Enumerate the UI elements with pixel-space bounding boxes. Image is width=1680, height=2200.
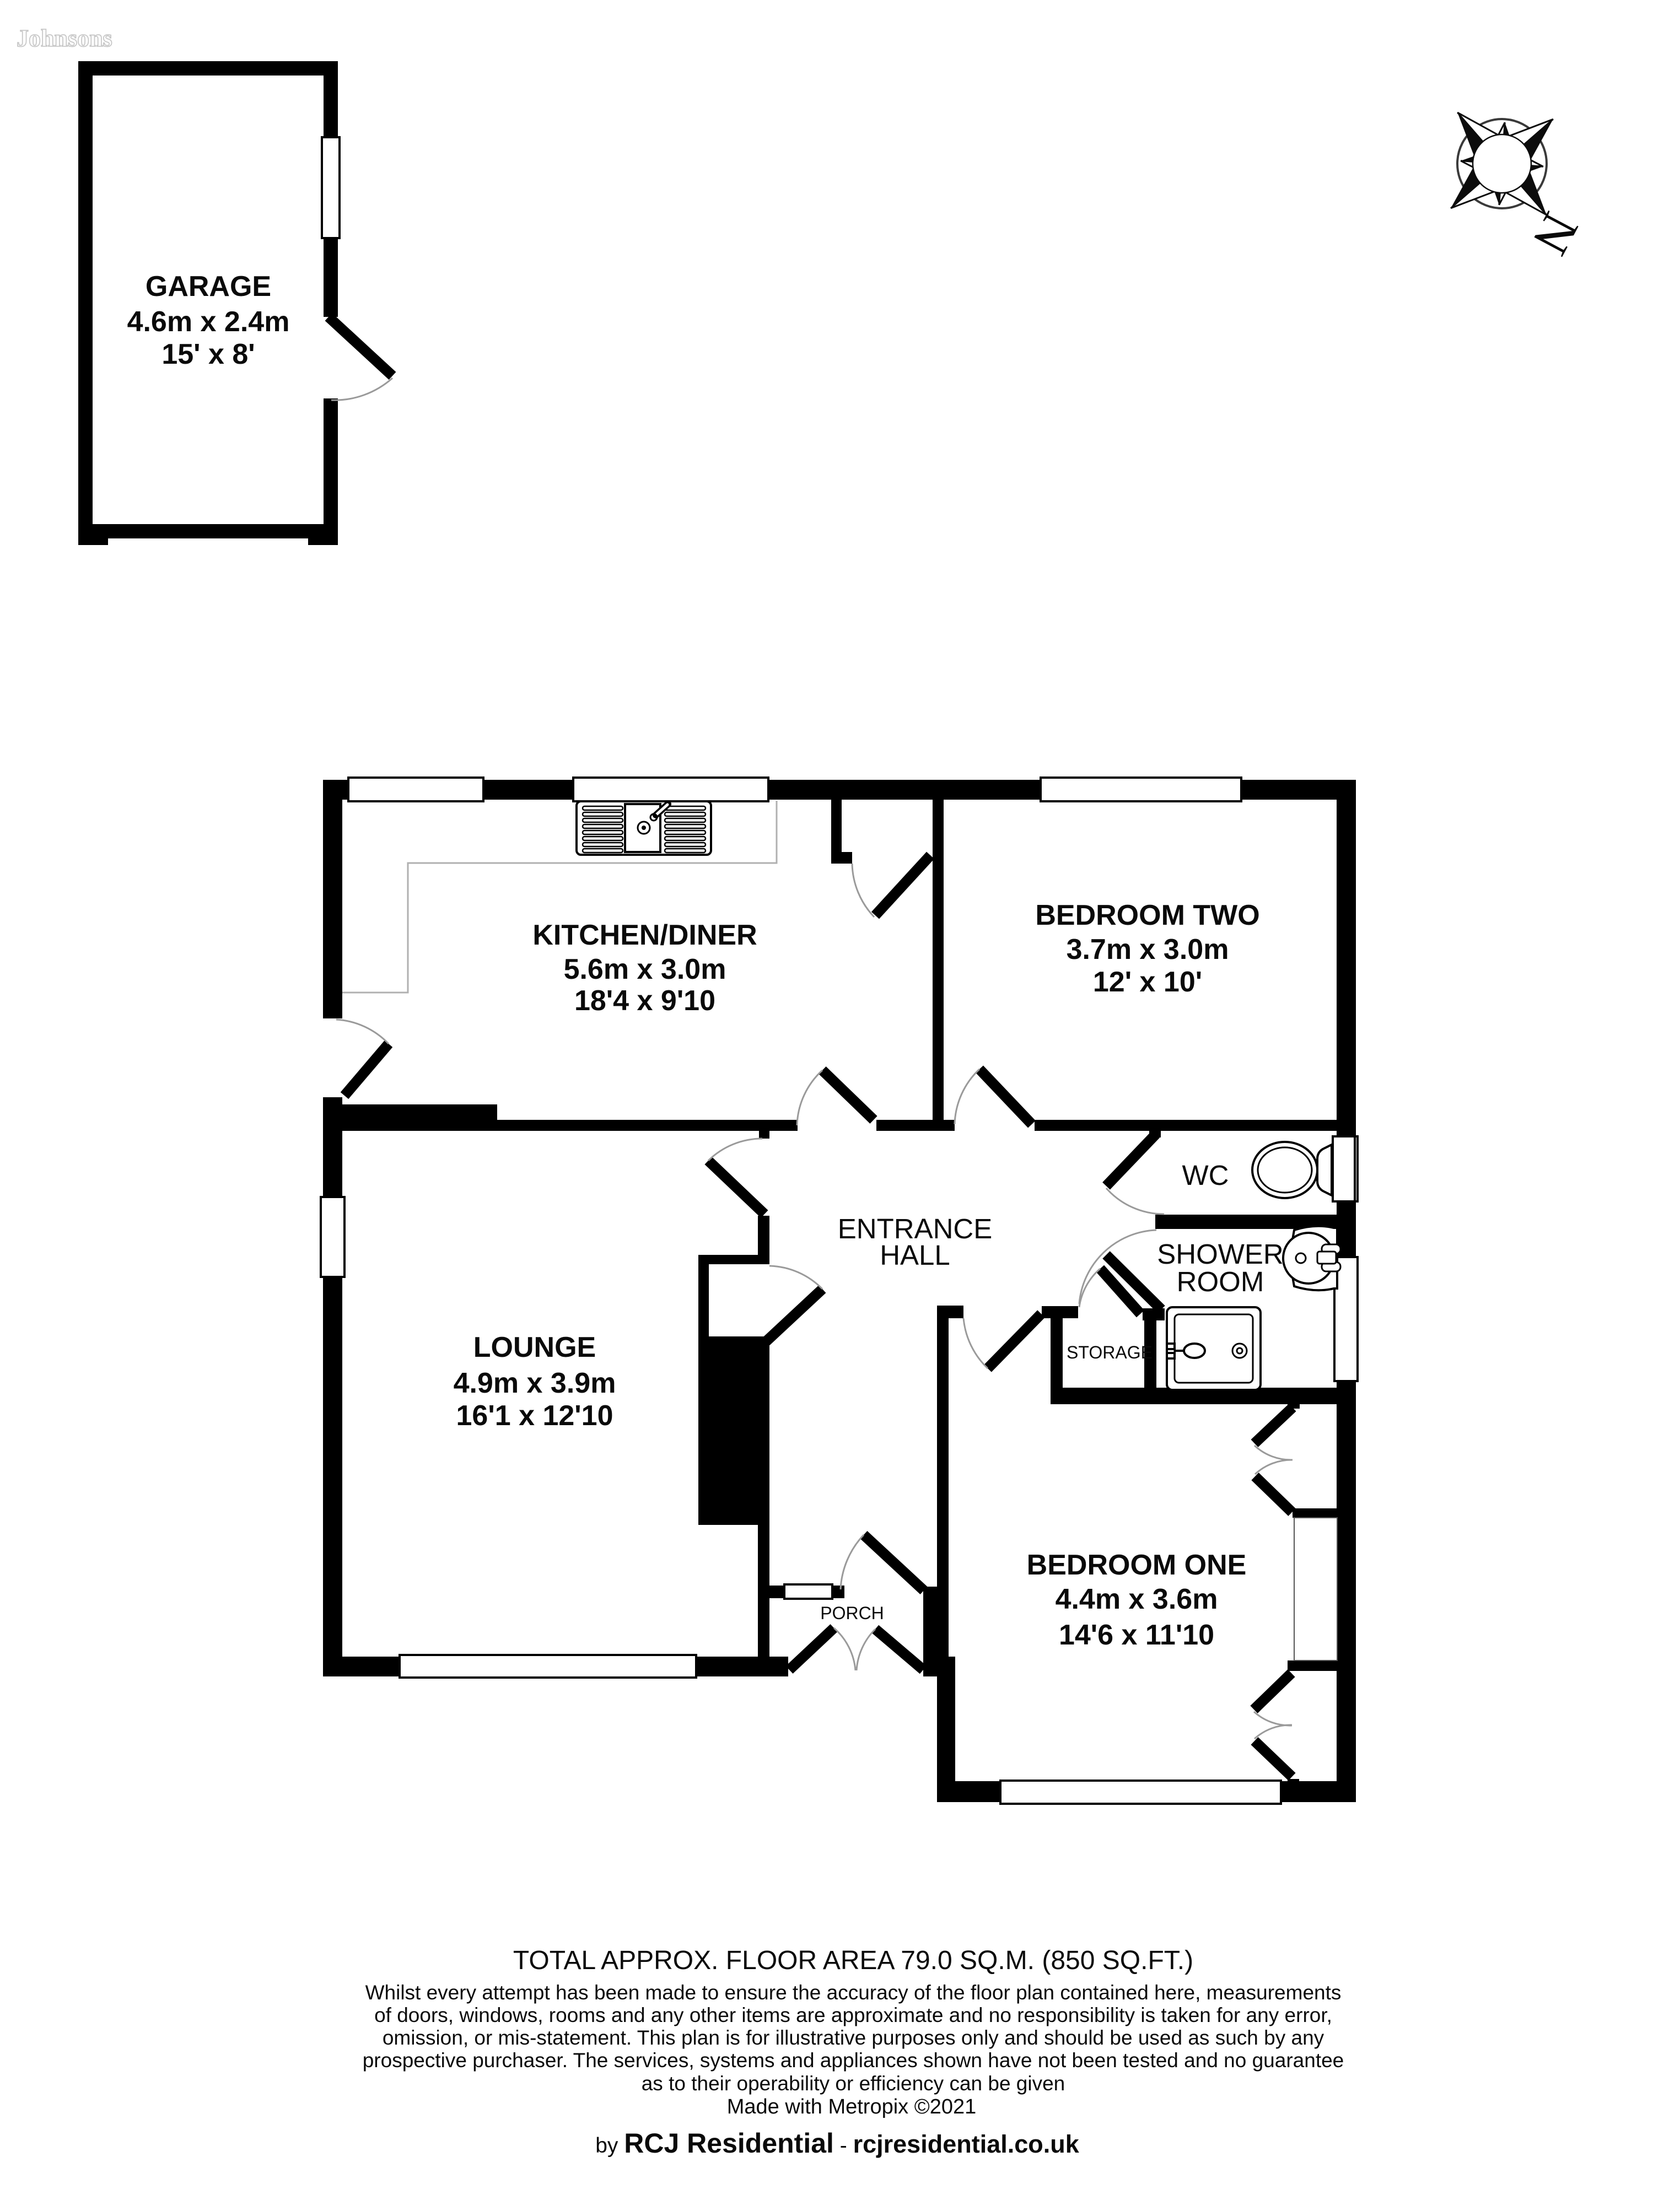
svg-text:prospective purchaser. The ser: prospective purchaser. The services, sys… bbox=[363, 2049, 1344, 2072]
svg-text:Made with Metropix ©2021: Made with Metropix ©2021 bbox=[727, 2095, 977, 2118]
svg-text:18'4 x 9'10: 18'4 x 9'10 bbox=[574, 985, 715, 1017]
svg-text:12' x 10': 12' x 10' bbox=[1093, 966, 1202, 998]
svg-text:5.6m x 3.0m: 5.6m x 3.0m bbox=[564, 953, 726, 985]
svg-text:4.4m x 3.6m: 4.4m x 3.6m bbox=[1056, 1583, 1218, 1615]
svg-text:LOUNGE: LOUNGE bbox=[473, 1331, 596, 1363]
svg-text:14'6 x 11'10: 14'6 x 11'10 bbox=[1059, 1619, 1214, 1651]
svg-text:TOTAL APPROX. FLOOR AREA 79.0: TOTAL APPROX. FLOOR AREA 79.0 SQ.M. (850… bbox=[513, 1946, 1193, 1975]
svg-text:16'1 x 12'10: 16'1 x 12'10 bbox=[456, 1400, 613, 1432]
svg-text:15' x 8': 15' x 8' bbox=[161, 338, 255, 370]
svg-text:GARAGE: GARAGE bbox=[146, 271, 271, 303]
svg-text:4.9m x 3.9m: 4.9m x 3.9m bbox=[454, 1367, 616, 1399]
svg-text:PORCH: PORCH bbox=[820, 1603, 884, 1623]
svg-text:HALL: HALL bbox=[880, 1239, 950, 1271]
svg-text:STORAGE: STORAGE bbox=[1067, 1342, 1153, 1362]
svg-text:4.6m x 2.4m: 4.6m x 2.4m bbox=[127, 306, 290, 338]
svg-text:WC: WC bbox=[1182, 1160, 1229, 1191]
svg-text:BEDROOM TWO: BEDROOM TWO bbox=[1035, 899, 1259, 931]
svg-text:3.7m x 3.0m: 3.7m x 3.0m bbox=[1067, 934, 1229, 966]
svg-text:omission, or mis-statement. Th: omission, or mis-statement. This plan is… bbox=[383, 2026, 1324, 2049]
svg-text:SHOWER: SHOWER bbox=[1157, 1238, 1284, 1270]
svg-text:BEDROOM ONE: BEDROOM ONE bbox=[1027, 1549, 1247, 1581]
svg-text:KITCHEN/DINER: KITCHEN/DINER bbox=[532, 919, 757, 951]
svg-text:of doors, windows, rooms and a: of doors, windows, rooms and any other i… bbox=[374, 2004, 1332, 2026]
svg-text:Whilst every attempt has been: Whilst every attempt has been made to en… bbox=[365, 1981, 1342, 2004]
svg-text:Johnsons: Johnsons bbox=[17, 25, 112, 52]
svg-text:ROOM: ROOM bbox=[1177, 1266, 1264, 1297]
svg-text:as to their operability or eff: as to their operability or efficiency ca… bbox=[642, 2072, 1065, 2095]
